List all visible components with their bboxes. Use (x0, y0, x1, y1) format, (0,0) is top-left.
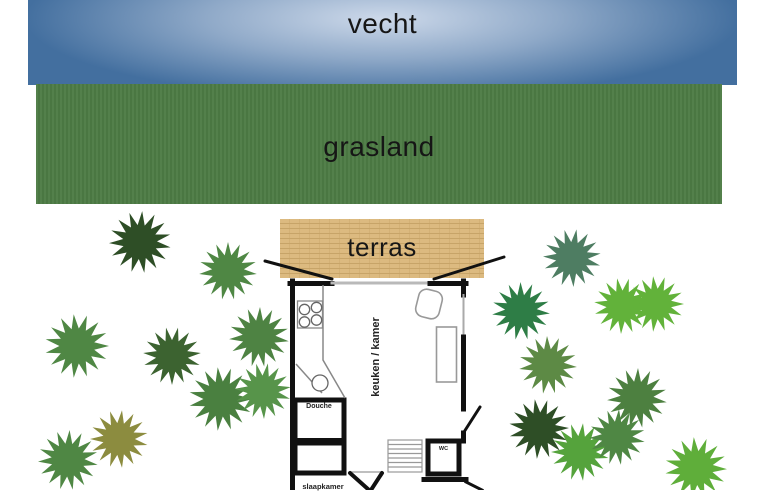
site-plan-page: { "areas": { "river": { "label": "vecht"… (0, 0, 760, 490)
river-label: vecht (28, 4, 737, 44)
room-label-shower: Douche (296, 403, 342, 410)
stairs (388, 440, 422, 472)
side-door-swing (464, 407, 480, 432)
sofa-icon (437, 327, 457, 382)
chair-icon (414, 288, 444, 321)
sink-icon (312, 375, 328, 391)
small-room (295, 443, 344, 473)
stove-icon (298, 301, 323, 328)
terrace-label: terras (280, 228, 484, 266)
room-label-toilet: WC (429, 446, 458, 452)
entrance-door (350, 472, 382, 490)
room-label-living-kitchen: keuken / kamer (370, 297, 384, 417)
grassland-label: grasland (36, 130, 722, 164)
